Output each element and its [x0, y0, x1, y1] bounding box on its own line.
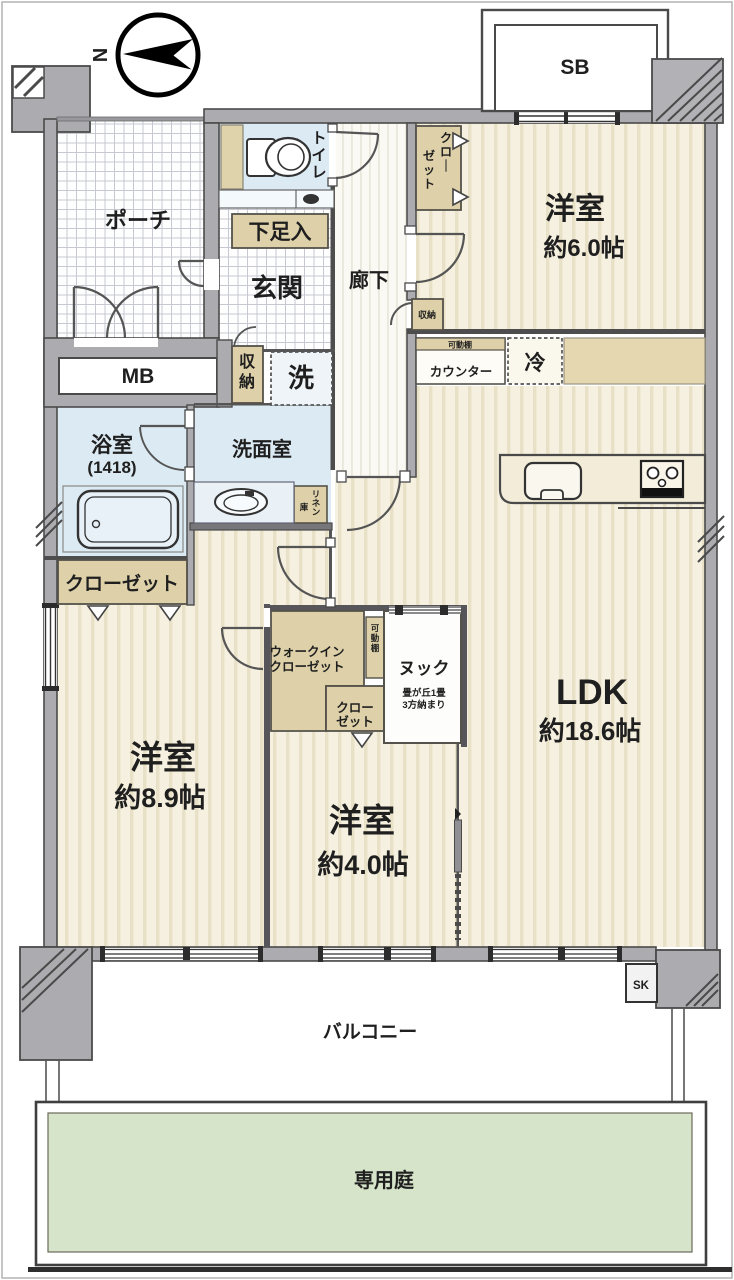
svg-text:ウォークイン: ウォークイン — [269, 645, 344, 659]
svg-text:冷: 冷 — [525, 351, 546, 375]
svg-text:ト: ト — [423, 177, 435, 191]
svg-text:洗: 洗 — [288, 363, 314, 393]
svg-text:ロ: ロ — [440, 145, 452, 159]
svg-text:ン: ン — [312, 507, 321, 517]
svg-text:クロー: クロー — [336, 701, 374, 715]
svg-text:動: 動 — [371, 633, 380, 643]
svg-text:ゼット: ゼット — [336, 714, 374, 729]
svg-text:SB: SB — [560, 56, 589, 79]
svg-text:(1418): (1418) — [87, 458, 136, 477]
svg-text:｜: ｜ — [440, 158, 452, 173]
svg-text:畳が丘1畳: 畳が丘1畳 — [402, 687, 446, 699]
svg-text:イ: イ — [311, 147, 326, 164]
svg-text:クローゼット: クローゼット — [269, 659, 344, 674]
svg-text:浴室: 浴室 — [91, 433, 133, 457]
svg-text:ッ: ッ — [423, 163, 435, 177]
svg-text:廊下: 廊下 — [349, 268, 389, 292]
svg-text:ゼ: ゼ — [423, 148, 435, 163]
svg-text:約6.0帖: 約6.0帖 — [543, 234, 624, 262]
svg-text:納: 納 — [239, 372, 255, 391]
svg-text:LDK: LDK — [556, 673, 628, 712]
svg-text:洋室: 洋室 — [329, 802, 395, 839]
svg-text:レ: レ — [311, 164, 326, 181]
svg-text:ト: ト — [311, 130, 326, 147]
svg-text:ヌック: ヌック — [399, 659, 450, 678]
svg-text:専用庭: 専用庭 — [354, 1168, 414, 1192]
svg-text:約8.9帖: 約8.9帖 — [114, 782, 206, 813]
svg-text:洗面室: 洗面室 — [232, 437, 292, 461]
svg-text:下足入: 下足入 — [249, 221, 312, 244]
svg-text:約18.6帖: 約18.6帖 — [539, 716, 642, 746]
svg-text:可動棚: 可動棚 — [448, 340, 472, 350]
svg-text:収納: 収納 — [418, 309, 436, 320]
svg-text:N: N — [90, 48, 112, 62]
svg-text:バルコニー: バルコニー — [323, 1021, 418, 1043]
svg-text:洋室: 洋室 — [130, 739, 196, 776]
svg-text:クローゼット: クローゼット — [65, 572, 179, 595]
svg-text:ポーチ: ポーチ — [105, 208, 171, 233]
svg-text:棚: 棚 — [371, 643, 380, 653]
svg-text:3方納まり: 3方納まり — [402, 699, 445, 711]
svg-text:収: 収 — [239, 353, 256, 371]
svg-text:庫: 庫 — [300, 502, 309, 512]
svg-text:SK: SK — [633, 980, 650, 992]
svg-text:約4.0帖: 約4.0帖 — [317, 849, 409, 880]
svg-text:玄関: 玄関 — [251, 273, 303, 303]
svg-text:カウンター: カウンター — [430, 364, 493, 379]
svg-text:ク: ク — [440, 131, 452, 145]
svg-text:MB: MB — [122, 365, 155, 388]
svg-text:可: 可 — [371, 623, 380, 633]
svg-text:洋室: 洋室 — [545, 192, 605, 226]
